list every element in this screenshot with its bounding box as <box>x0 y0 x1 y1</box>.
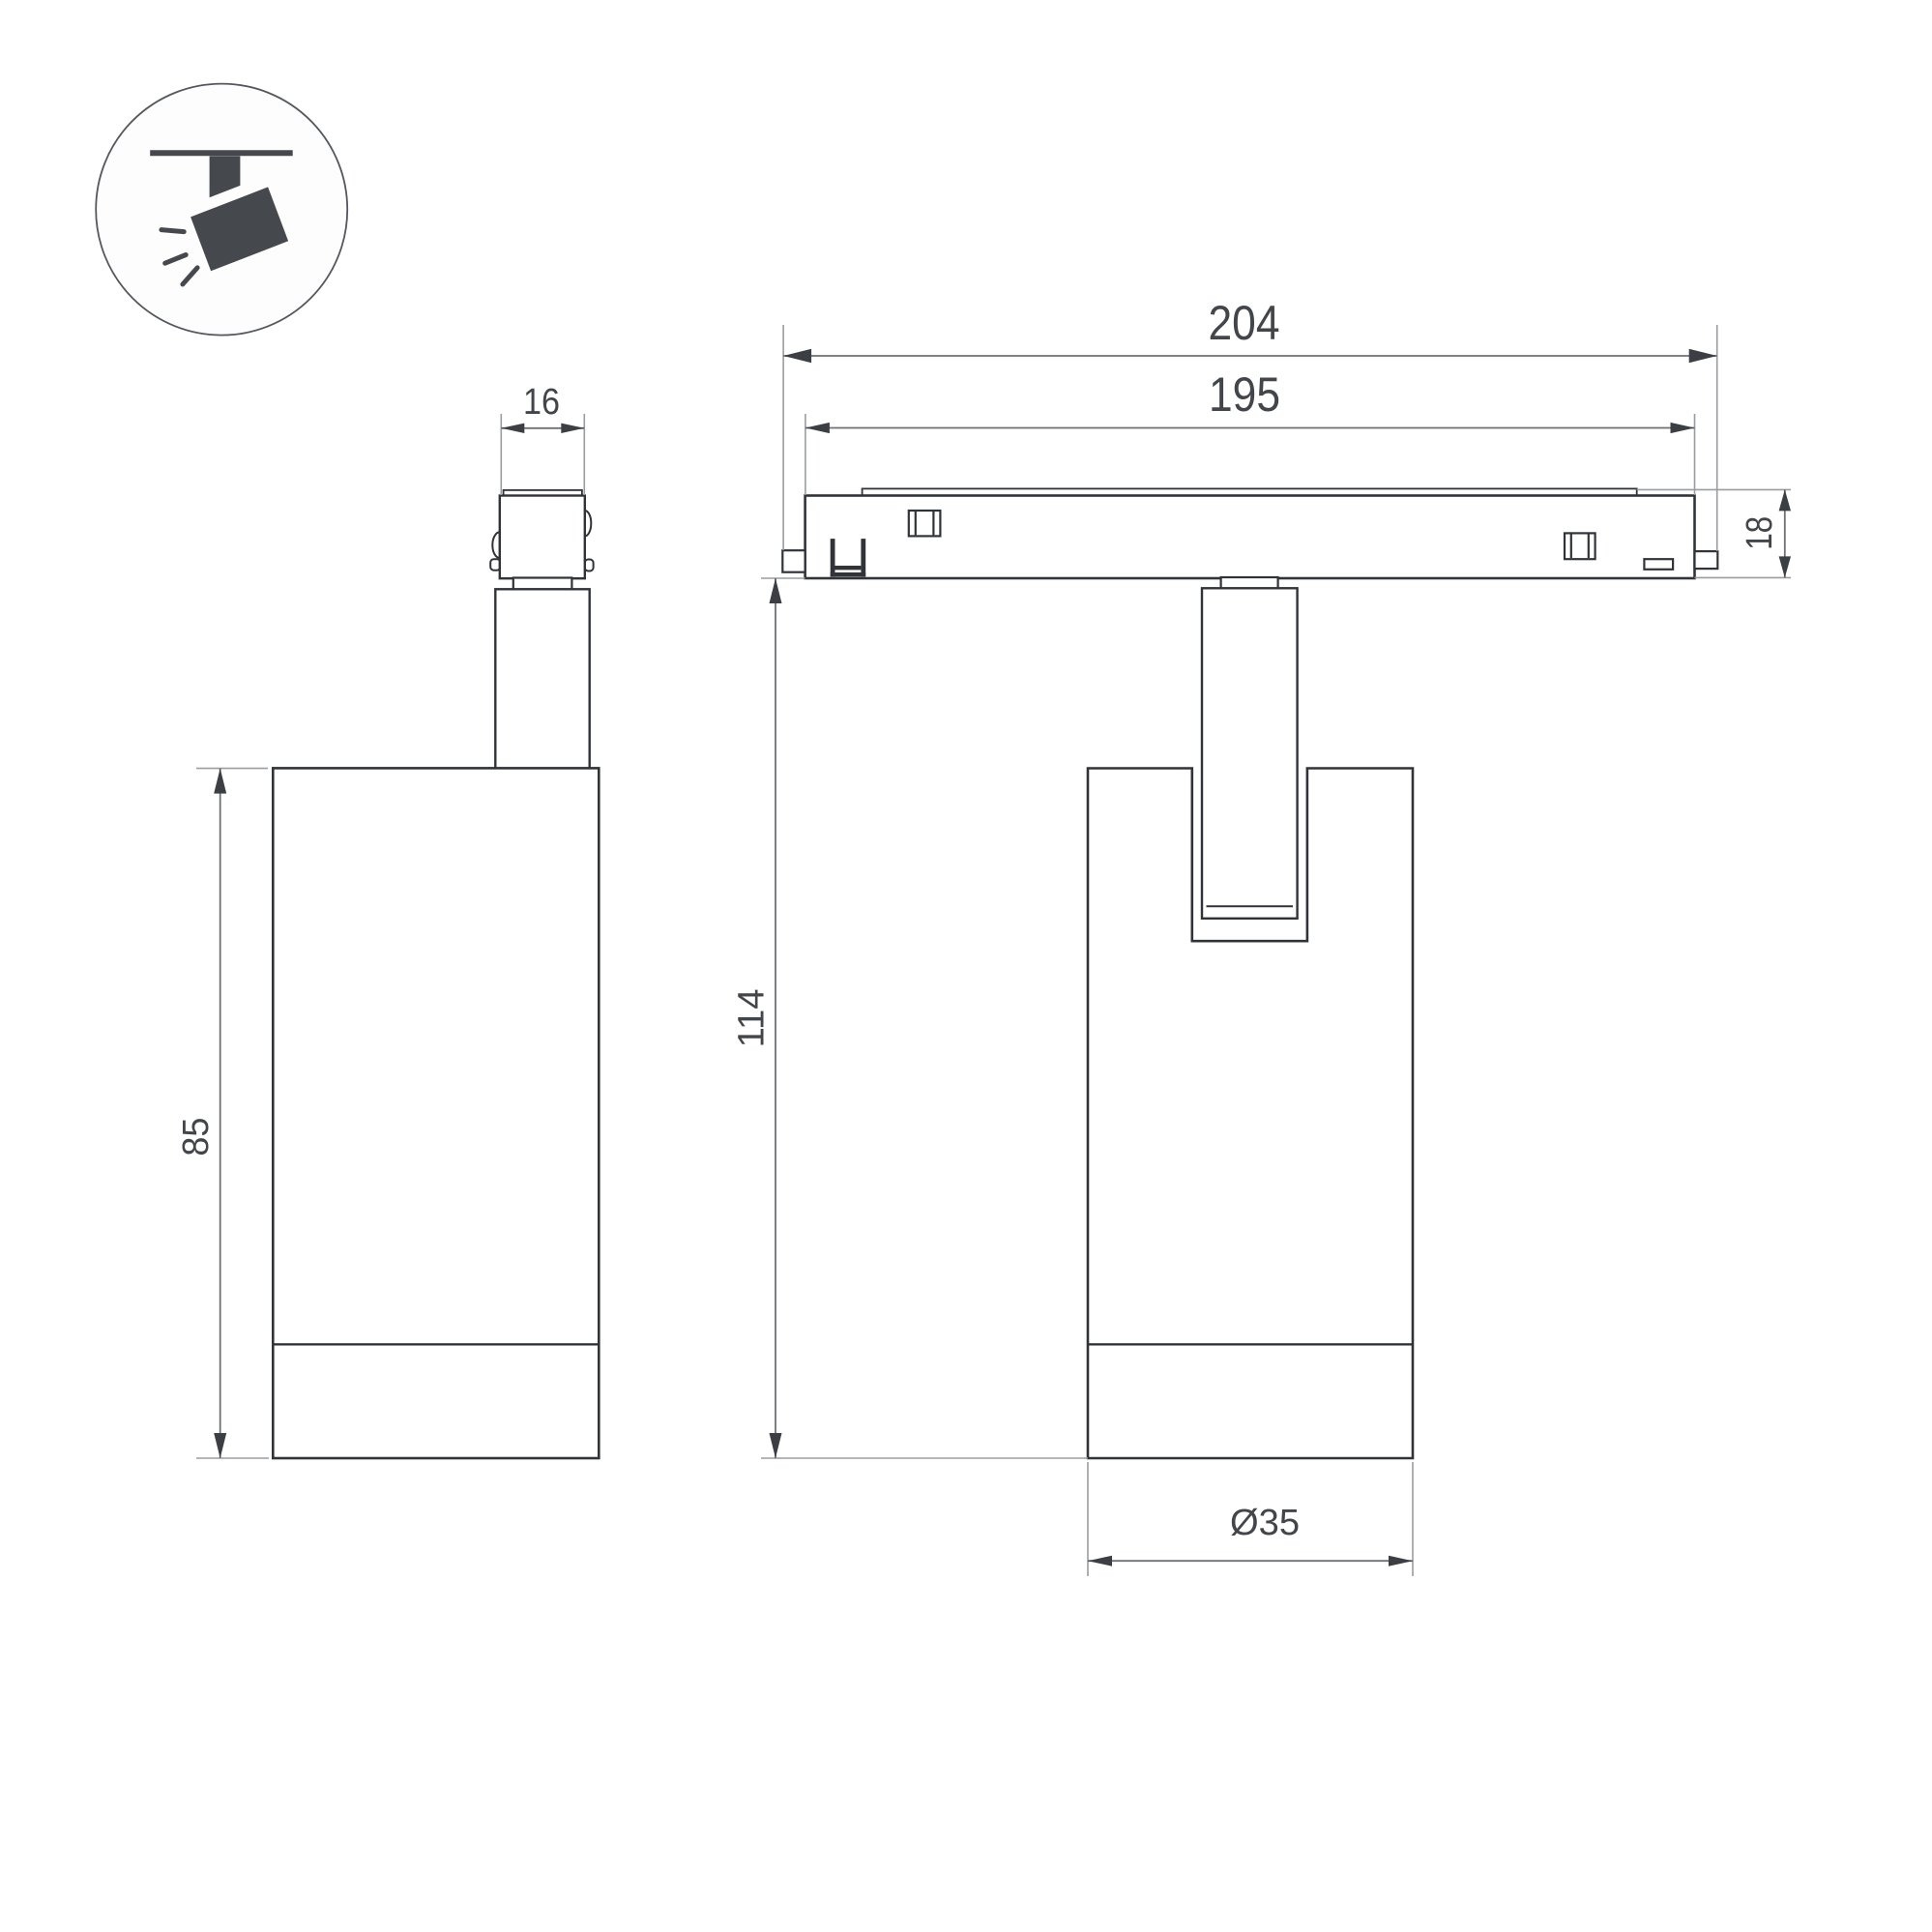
svg-text:195: 195 <box>1209 367 1280 422</box>
svg-text:Ø35: Ø35 <box>1230 1503 1300 1543</box>
svg-text:85: 85 <box>176 1118 217 1156</box>
svg-text:16: 16 <box>523 382 560 423</box>
svg-text:114: 114 <box>732 988 773 1047</box>
svg-text:204: 204 <box>1209 296 1280 350</box>
svg-text:18: 18 <box>1740 516 1780 550</box>
